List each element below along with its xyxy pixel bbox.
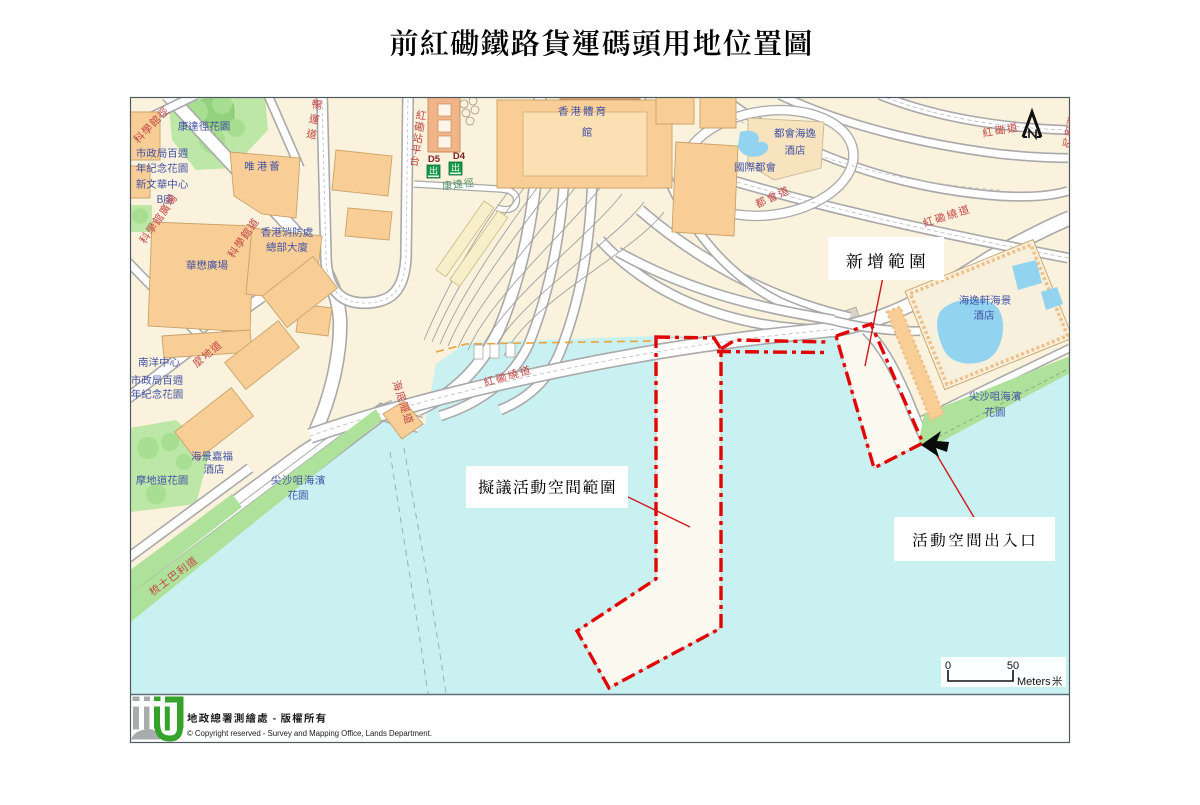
svg-text:D4: D4 xyxy=(453,151,466,162)
svg-text:D5: D5 xyxy=(428,154,441,165)
svg-text:0: 0 xyxy=(945,660,951,672)
svg-text:50: 50 xyxy=(1007,660,1019,672)
svg-text:© Copyright reserved - Survey: © Copyright reserved - Survey and Mappin… xyxy=(187,729,432,738)
svg-text:Meters: Meters xyxy=(1017,676,1051,688)
